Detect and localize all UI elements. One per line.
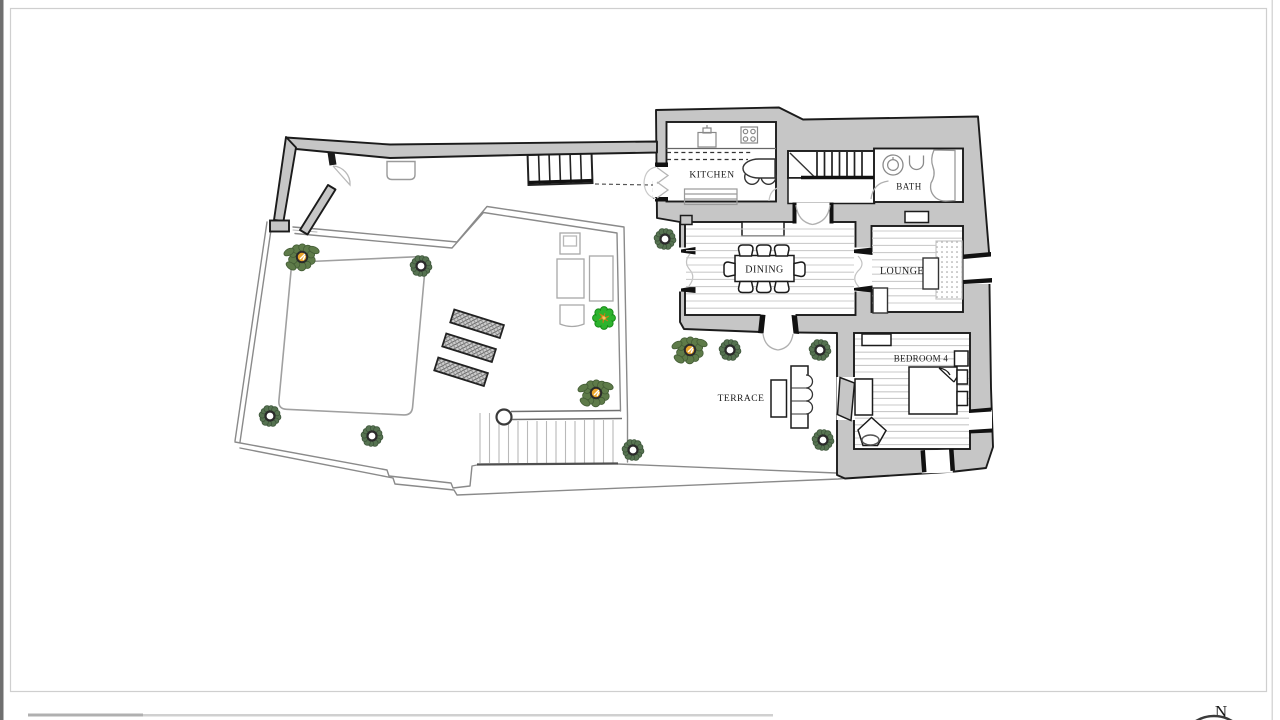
svg-text:BEDROOM 4: BEDROOM 4 bbox=[894, 354, 949, 364]
svg-text:LOUNGE: LOUNGE bbox=[880, 266, 924, 277]
svg-text:DINING: DINING bbox=[745, 265, 784, 276]
svg-text:KITCHEN: KITCHEN bbox=[689, 171, 734, 181]
svg-text:TERRACE: TERRACE bbox=[718, 394, 765, 404]
svg-text:BATH: BATH bbox=[896, 182, 922, 192]
